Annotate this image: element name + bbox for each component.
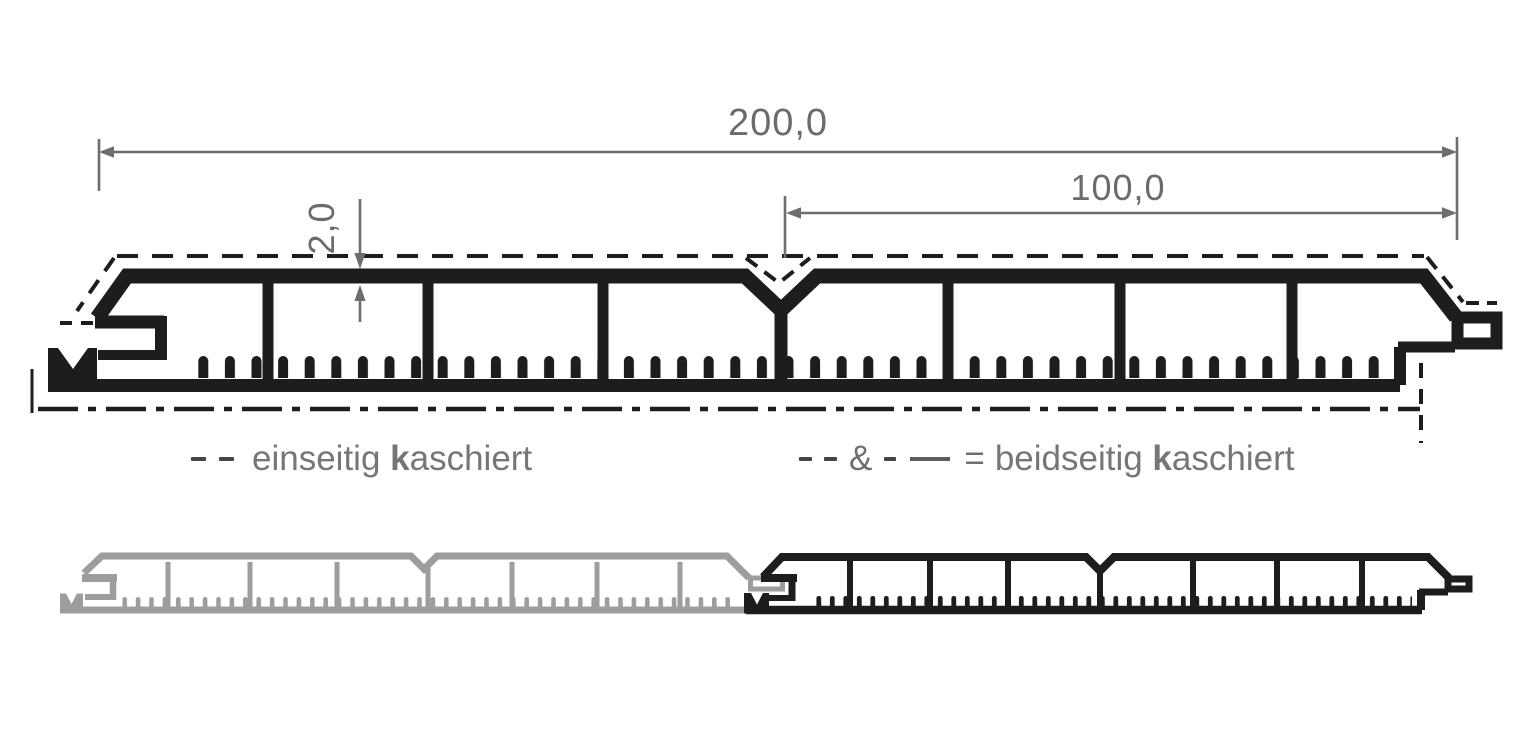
black-top-wall — [763, 557, 1449, 578]
black-teeth — [812, 596, 1412, 606]
dash-symbol — [219, 457, 234, 461]
gray-panel — [60, 556, 783, 613]
equals-symbol: = — [964, 439, 984, 479]
legend-left: einseitig kaschiert — [191, 438, 532, 480]
bottom-wall-teeth — [190, 356, 1390, 378]
arrow-left-100 — [786, 207, 801, 219]
dash-symbol — [824, 457, 837, 461]
legend-left-text: einseitig kaschiert — [252, 439, 532, 479]
arrow-left-200 — [99, 146, 114, 158]
dimension-label-200: 200,0 — [713, 104, 843, 142]
solid-line-symbol — [910, 457, 950, 461]
dimension-label-100: 100,0 — [1053, 170, 1183, 206]
arrow-down-2 — [354, 253, 365, 269]
black-panel — [744, 557, 1469, 614]
lamination-contour-dashed — [32, 256, 1497, 443]
ampersand-symbol: & — [849, 439, 872, 479]
assembled-panels — [60, 556, 1469, 614]
arrow-up-2 — [354, 285, 365, 301]
dimension-label-2: 2,0 — [303, 194, 341, 262]
arrow-right-200 — [1442, 146, 1457, 158]
dash-symbol — [799, 457, 812, 461]
left-hook-with-v-notch — [48, 348, 97, 392]
drawing-stage: 200,0 100,0 2,0 einseitig kaschiert & = … — [0, 0, 1530, 744]
right-tongue — [1458, 318, 1497, 344]
dash-symbol — [884, 457, 896, 461]
arrow-right-100 — [1442, 207, 1457, 219]
black-tongue — [1448, 579, 1469, 589]
legend-right-text: beidseitig kaschiert — [995, 439, 1295, 479]
dash-symbol — [191, 457, 206, 461]
legend-right: & = beidseitig kaschiert — [799, 438, 1294, 480]
main-profile — [48, 276, 1497, 392]
gray-top-wall — [84, 556, 749, 578]
